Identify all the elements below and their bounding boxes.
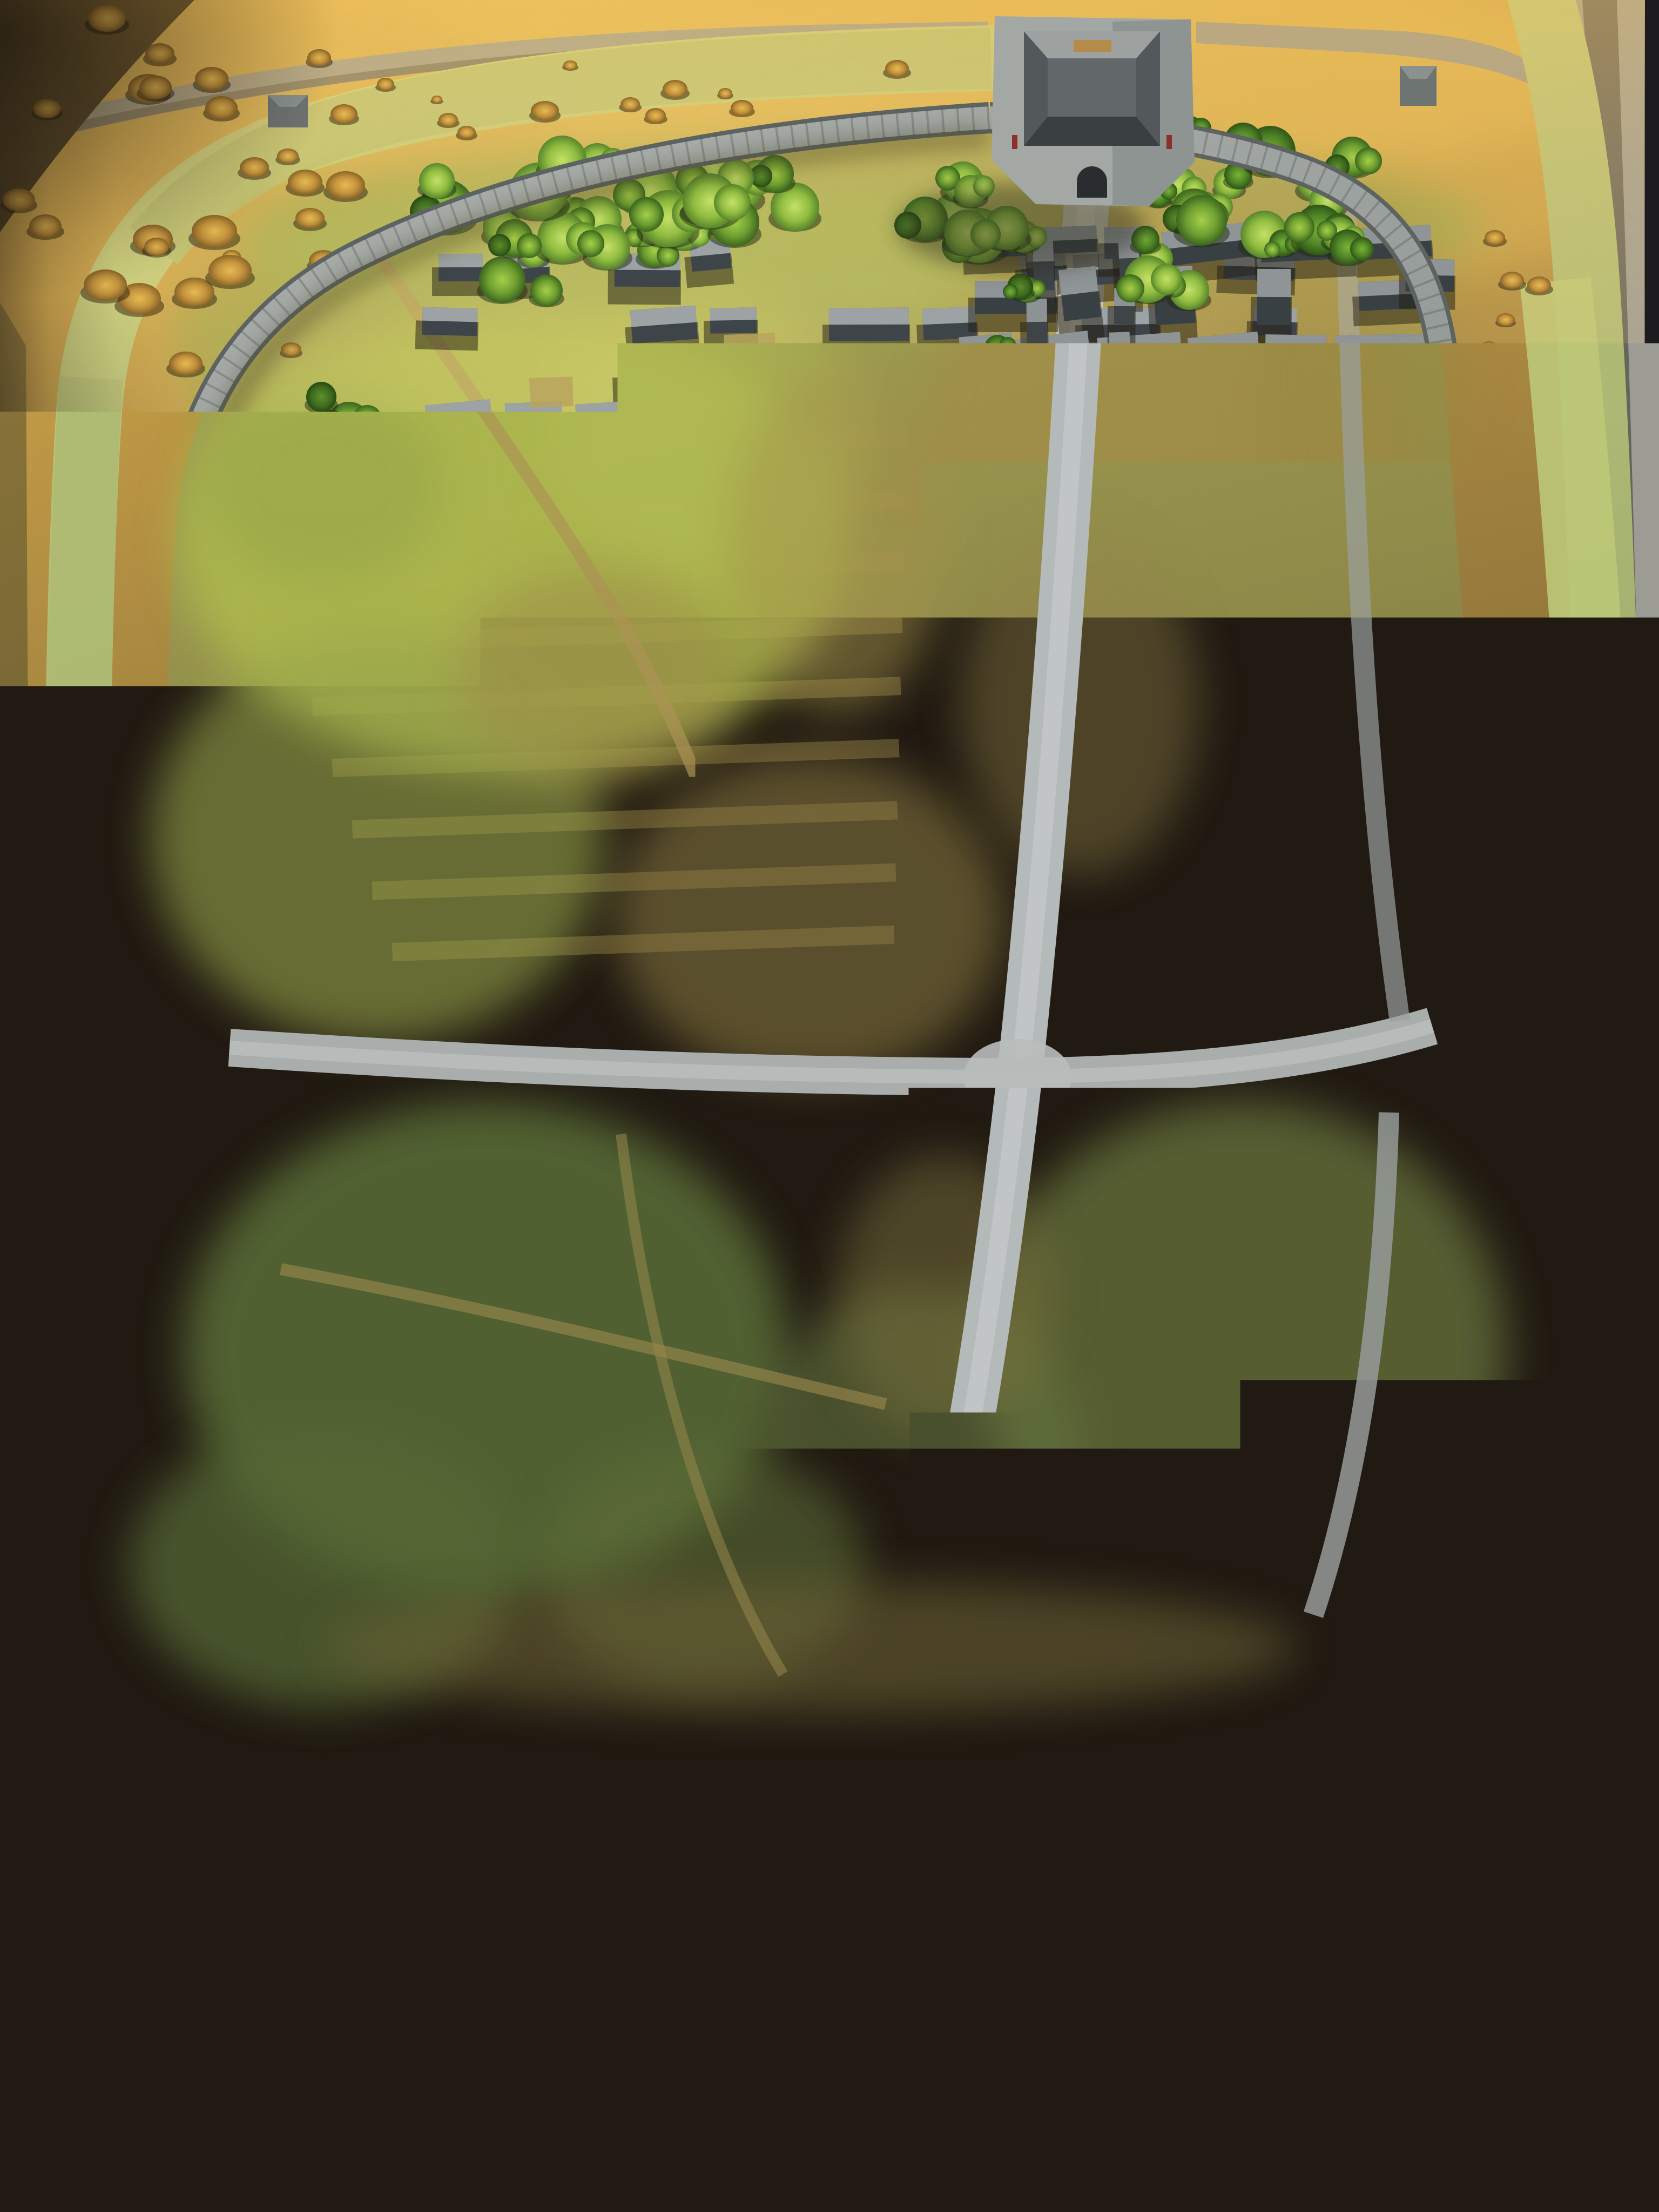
svg-text:(1:500): (1:500) [455, 1936, 515, 1957]
